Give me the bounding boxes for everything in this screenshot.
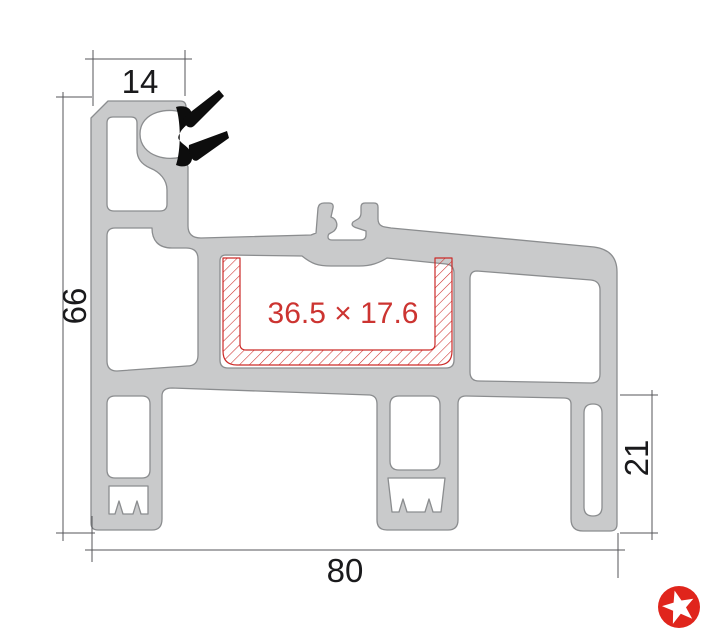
profile-drawing: 36.5 × 17.6 14 66 80 21 [0, 0, 712, 639]
technical-drawing-canvas: 36.5 × 17.6 14 66 80 21 [0, 0, 712, 639]
brand-logo [658, 586, 700, 628]
chamber-size-label: 36.5 × 17.6 [268, 297, 419, 330]
dimension-overall-width-label: 80 [327, 552, 364, 589]
dimension-right-height-label: 21 [618, 440, 655, 477]
dimension-overall-height-label: 66 [56, 288, 93, 325]
dimension-top-width-label: 14 [122, 63, 159, 100]
